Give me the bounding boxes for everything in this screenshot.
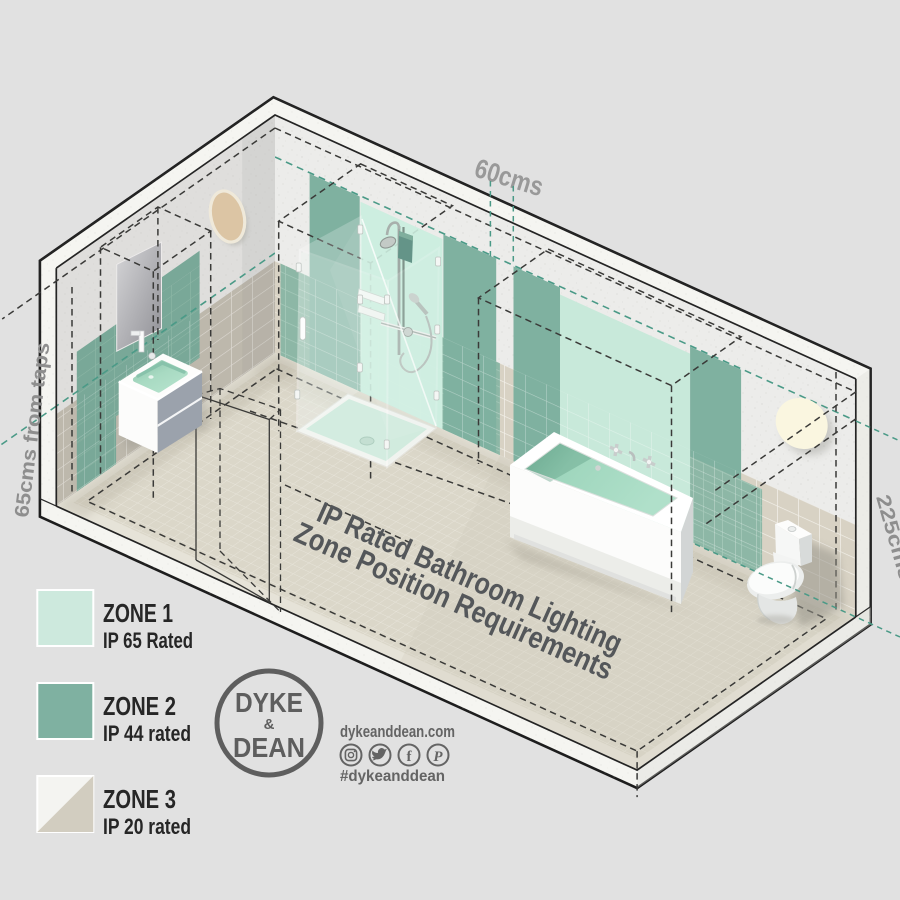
svg-text:ZONE 1: ZONE 1 <box>103 598 173 628</box>
svg-text:#dykeanddean: #dykeanddean <box>340 768 445 785</box>
svg-text:ZONE 2: ZONE 2 <box>103 691 176 721</box>
svg-text:IP 20 rated: IP 20 rated <box>103 814 191 839</box>
svg-text:DEAN: DEAN <box>233 732 305 763</box>
svg-text:IP 44 rated: IP 44 rated <box>103 721 191 746</box>
svg-text:ZONE 3: ZONE 3 <box>103 784 176 814</box>
svg-text:P: P <box>433 749 443 765</box>
svg-text:DYKE: DYKE <box>235 687 303 718</box>
svg-text:IP 65 Rated: IP 65 Rated <box>103 628 193 653</box>
svg-text:&: & <box>264 716 275 733</box>
svg-text:dykeanddean.com: dykeanddean.com <box>340 722 455 741</box>
